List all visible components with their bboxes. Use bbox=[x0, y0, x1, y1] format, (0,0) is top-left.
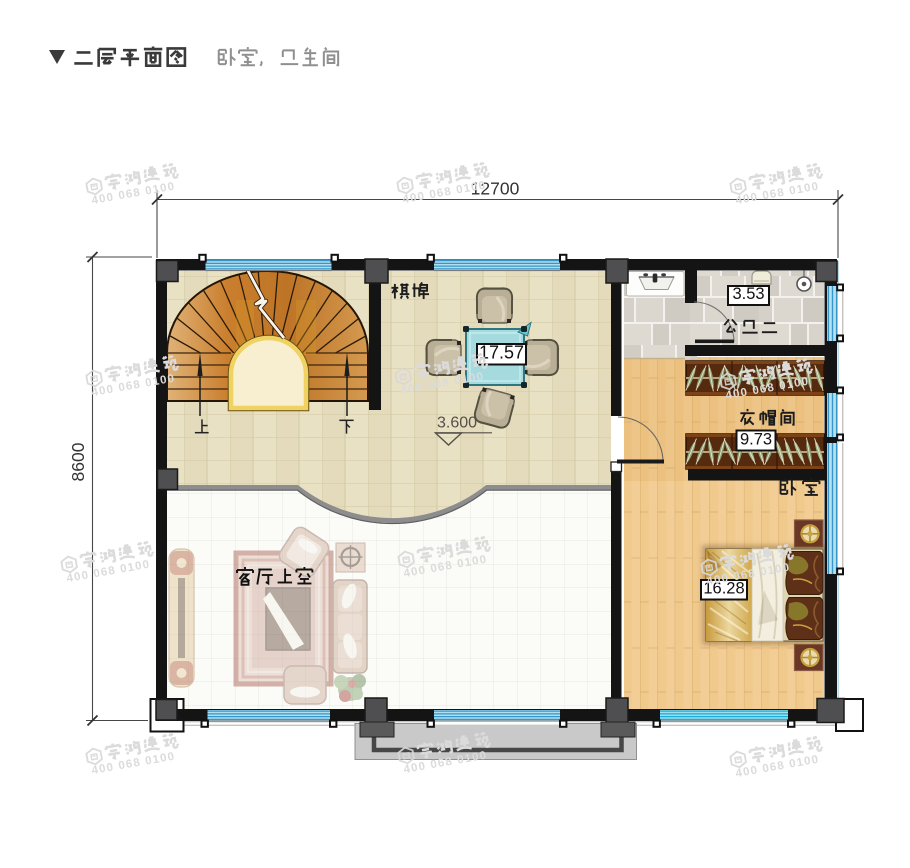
svg-text:3.53: 3.53 bbox=[732, 285, 764, 303]
svg-text:8600: 8600 bbox=[68, 442, 88, 481]
svg-text:9.73: 9.73 bbox=[740, 431, 772, 449]
svg-text:3.600: 3.600 bbox=[437, 415, 477, 432]
svg-text:17.57: 17.57 bbox=[479, 343, 524, 363]
